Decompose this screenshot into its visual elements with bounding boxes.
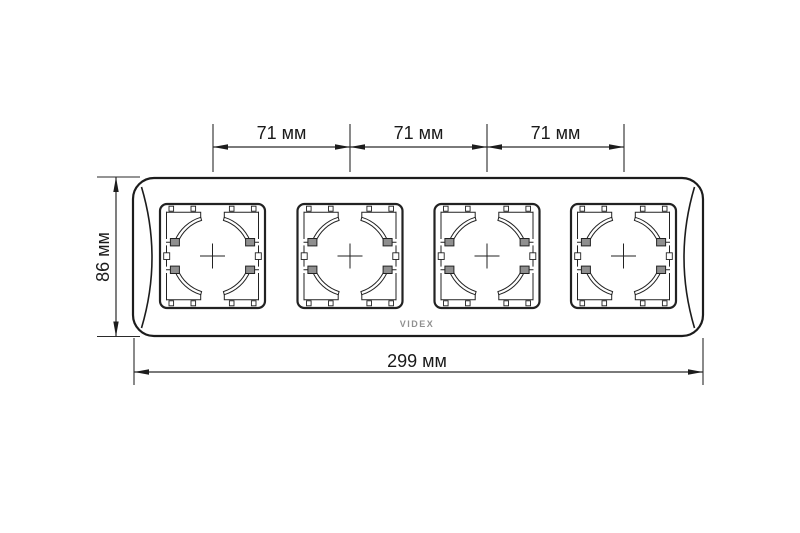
technical-drawing-svg	[0, 0, 800, 533]
dim-label-bottom: 299 мм	[387, 352, 447, 370]
dim-label-left: 86 мм	[94, 232, 112, 282]
window-opening-2	[298, 204, 403, 308]
window-opening-4	[571, 204, 676, 308]
drawing-canvas: 71 мм 71 мм 71 мм 86 мм 299 мм VIDEX	[0, 0, 800, 533]
frame-plate	[133, 178, 703, 336]
brand-logo: VIDEX	[400, 319, 435, 329]
dim-label-top-3: 71 мм	[531, 124, 581, 142]
dim-label-top-1: 71 мм	[257, 124, 307, 142]
dim-label-top-2: 71 мм	[394, 124, 444, 142]
window-opening-3	[435, 204, 540, 308]
window-opening-1	[160, 204, 265, 308]
